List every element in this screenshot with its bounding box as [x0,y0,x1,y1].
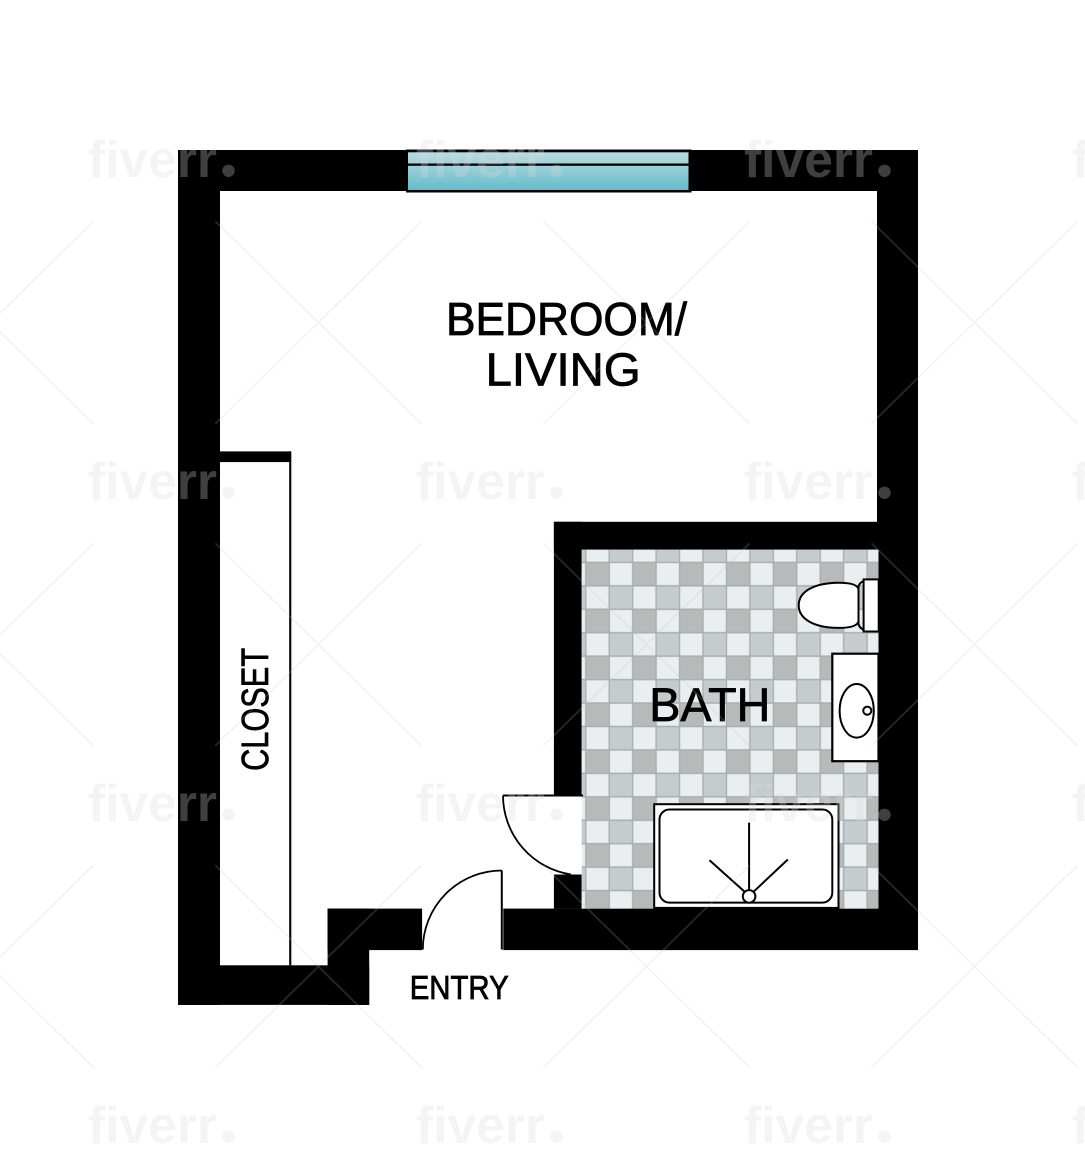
svg-text:fiverr: fiverr [416,775,545,833]
svg-text:fiverr: fiverr [88,1097,217,1155]
svg-text:BATH: BATH [649,678,770,731]
svg-text:fiverr: fiverr [416,1097,545,1155]
svg-text:fiverr: fiverr [1072,131,1085,189]
svg-text:fiverr: fiverr [744,775,873,833]
svg-text:fiverr: fiverr [744,131,873,189]
svg-text:fiverr: fiverr [88,775,217,833]
svg-text:CLOSET: CLOSET [235,648,277,771]
svg-text:fiverr: fiverr [1072,453,1085,511]
svg-text:fiverr: fiverr [88,131,217,189]
svg-text:fiverr: fiverr [416,453,545,511]
svg-text:fiverr: fiverr [744,453,873,511]
svg-text:fiverr: fiverr [1072,1097,1085,1155]
svg-text:ENTRY: ENTRY [410,969,509,1006]
svg-text:fiverr: fiverr [1072,775,1085,833]
svg-text:fiverr: fiverr [744,1097,873,1155]
svg-text:fiverr: fiverr [88,453,217,511]
svg-text:fiverr: fiverr [416,131,545,189]
